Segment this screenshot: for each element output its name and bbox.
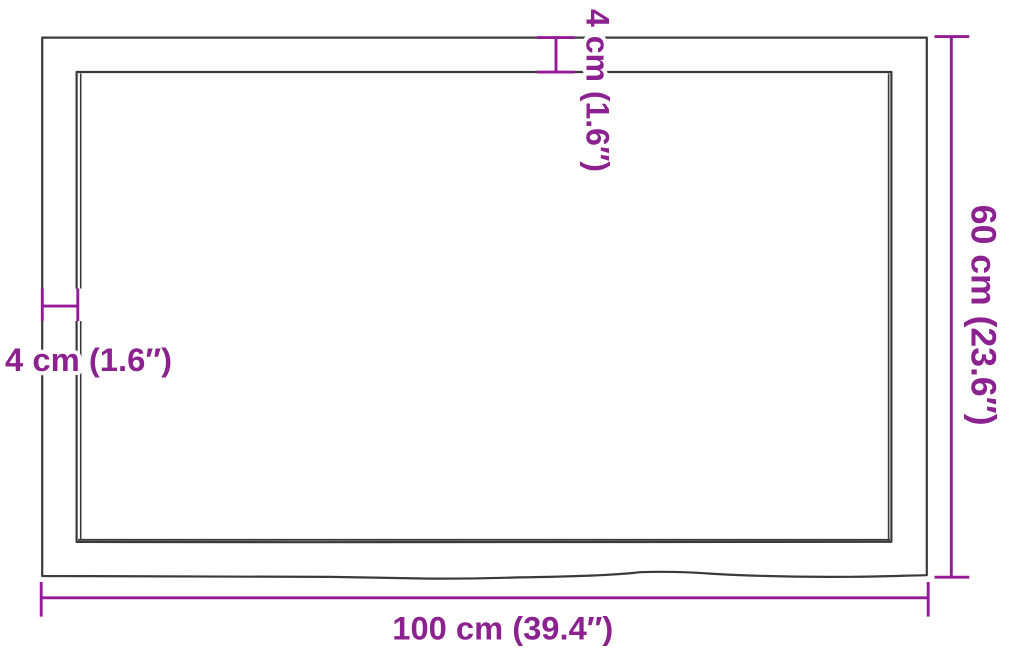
svg-text:100 cm (39.4″): 100 cm (39.4″) [392, 610, 613, 647]
svg-text:4 cm (1.6″): 4 cm (1.6″) [580, 9, 616, 172]
svg-text:4 cm (1.6″): 4 cm (1.6″) [5, 341, 172, 378]
svg-text:60 cm (23.6″): 60 cm (23.6″) [964, 205, 1004, 426]
